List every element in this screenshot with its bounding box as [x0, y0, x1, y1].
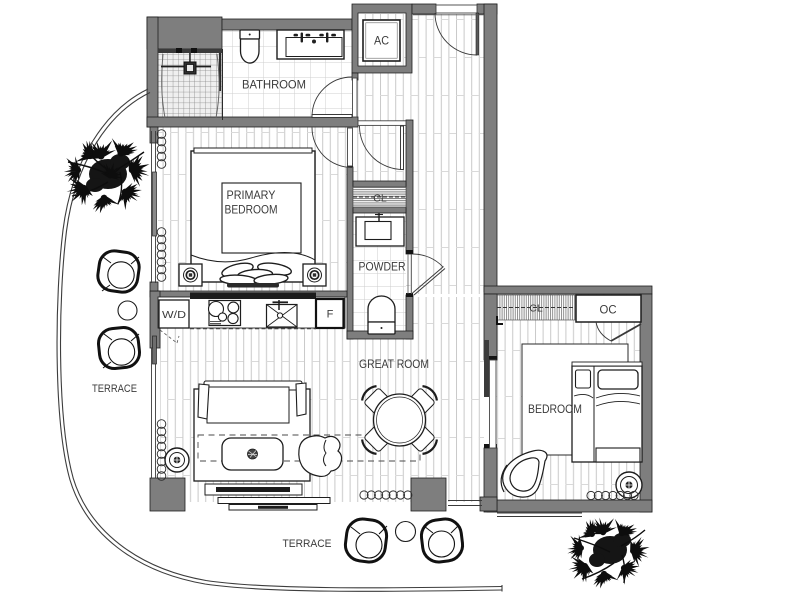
svg-text:TERRACE: TERRACE [92, 383, 137, 395]
svg-text:GREAT ROOM: GREAT ROOM [359, 359, 429, 371]
svg-text:BATHROOM: BATHROOM [242, 80, 306, 92]
svg-text:CL: CL [373, 193, 387, 205]
svg-text:POWDER: POWDER [359, 262, 406, 274]
svg-text:W/D: W/D [162, 309, 186, 321]
svg-text:BEDROOM: BEDROOM [528, 404, 582, 416]
svg-text:TERRACE: TERRACE [283, 538, 332, 550]
svg-text:PRIMARY: PRIMARY [227, 190, 276, 202]
svg-text:BEDROOM: BEDROOM [225, 205, 278, 217]
svg-text:CL: CL [529, 303, 543, 315]
svg-text:F: F [327, 309, 334, 321]
svg-text:OC: OC [600, 305, 617, 317]
svg-text:AC: AC [374, 36, 389, 48]
